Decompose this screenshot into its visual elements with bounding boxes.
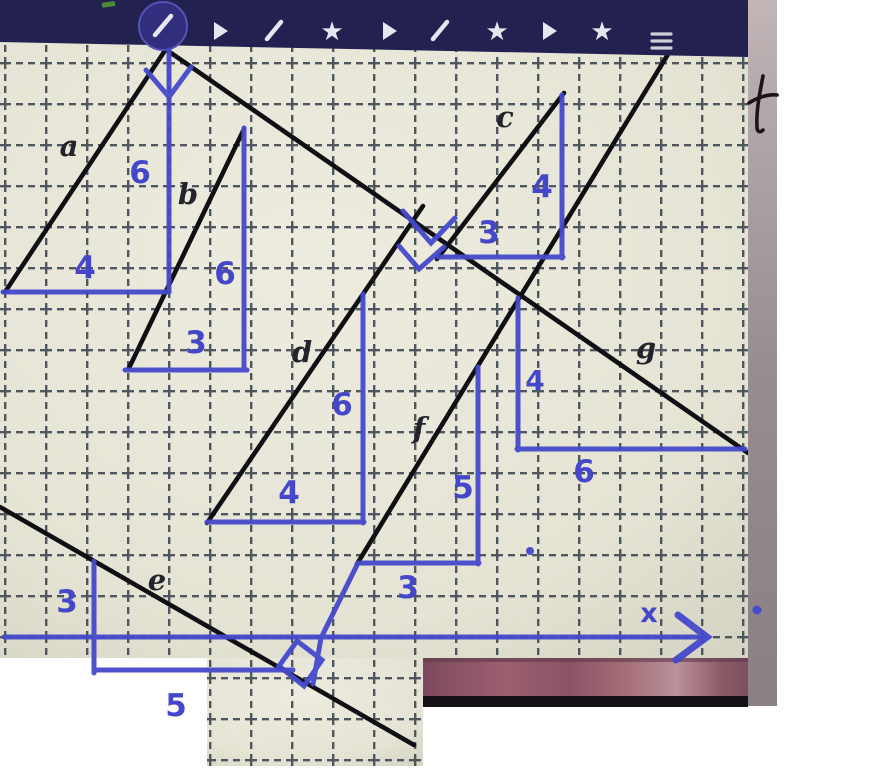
screenshot-stage: a b c d e f g ★ ★ xyxy=(0,0,884,779)
photo-edge-strip xyxy=(748,0,777,706)
desk-top-edge xyxy=(423,658,748,662)
label-line-g: g xyxy=(636,331,656,365)
ink-dot xyxy=(526,547,534,555)
white-bottom-edge xyxy=(207,766,423,779)
desk-band xyxy=(423,658,748,707)
run-label-d: 4 xyxy=(278,475,300,511)
star-icon[interactable]: ★ xyxy=(485,17,508,47)
x-axis-label: x xyxy=(640,598,657,629)
gray-strip xyxy=(748,0,777,706)
label-line-d: d xyxy=(292,335,312,369)
star-icon[interactable]: ★ xyxy=(590,17,613,47)
label-line-c: c xyxy=(496,100,514,134)
desk-black-strip xyxy=(423,696,748,707)
rise-label-g: 4 xyxy=(525,364,544,397)
label-line-a: a xyxy=(60,129,79,163)
desk-pink xyxy=(423,658,748,697)
label-line-b: b xyxy=(178,177,198,211)
run-label-g: 6 xyxy=(573,454,595,490)
label-line-e: e xyxy=(148,563,166,597)
white-right-margin xyxy=(777,0,884,779)
paper-canvas[interactable] xyxy=(0,42,748,766)
run-label-f: 3 xyxy=(397,570,419,606)
run-label-a: 4 xyxy=(74,250,96,286)
rise-label-f: 5 xyxy=(452,470,474,506)
rise-label-e: 3 xyxy=(56,584,78,620)
run-label-b: 3 xyxy=(185,325,207,361)
rise-label-b: 6 xyxy=(214,256,236,292)
run-label-e: 5 xyxy=(165,688,187,724)
run-label-c: 3 xyxy=(478,215,500,251)
rise-label-c: 4 xyxy=(531,169,553,205)
toolbar-icon-pencil-circle[interactable] xyxy=(139,2,187,50)
rise-label-a: 6 xyxy=(129,155,151,191)
star-icon[interactable]: ★ xyxy=(320,17,343,47)
worksheet-photo: a b c d e f g ★ ★ xyxy=(0,0,884,779)
rise-label-d: 6 xyxy=(331,387,353,423)
ink-dot xyxy=(753,606,762,615)
